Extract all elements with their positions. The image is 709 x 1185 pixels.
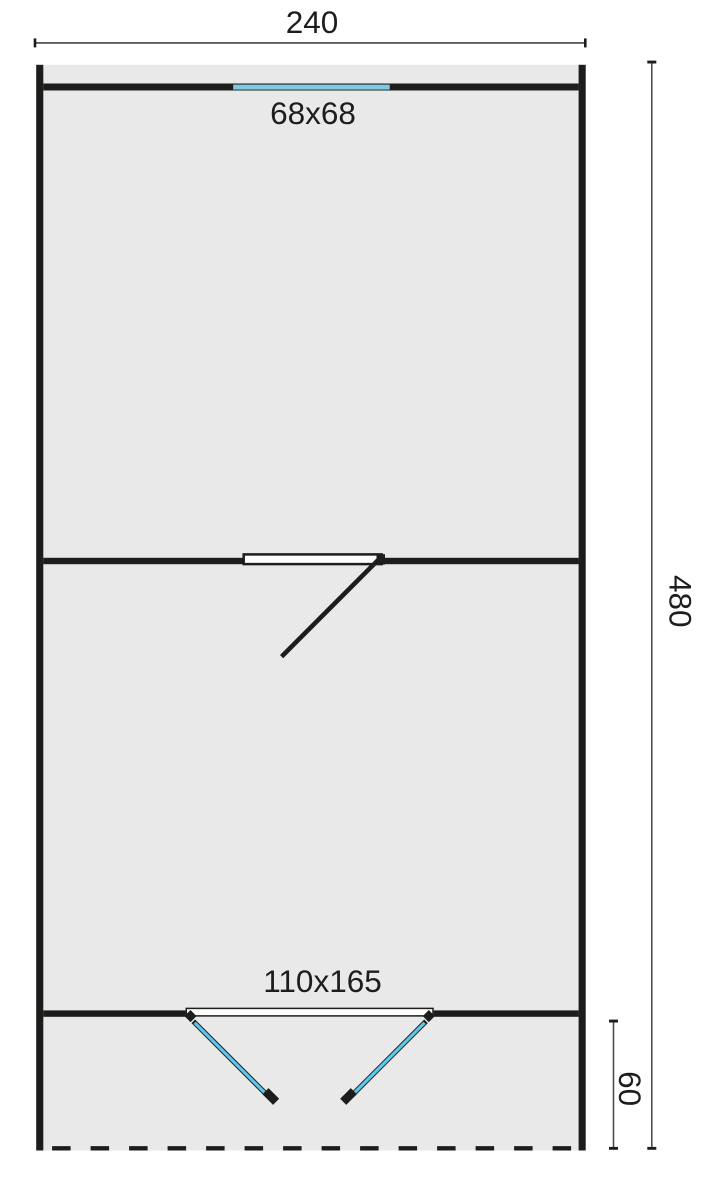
svg-text:240: 240 [286, 4, 339, 40]
svg-text:110x165: 110x165 [263, 963, 382, 999]
svg-text:68x68: 68x68 [270, 95, 356, 131]
svg-text:480: 480 [663, 575, 699, 628]
svg-text:60: 60 [612, 1071, 648, 1106]
